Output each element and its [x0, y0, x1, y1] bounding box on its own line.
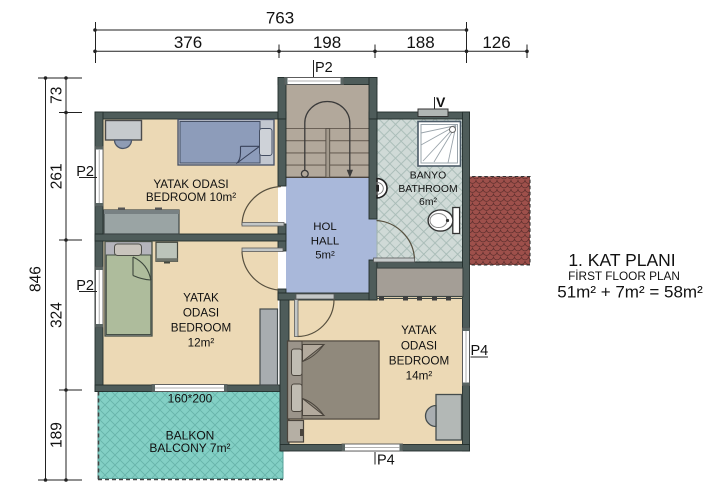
svg-text:14m²: 14m²	[406, 370, 433, 383]
svg-text:6m²: 6m²	[419, 197, 437, 208]
svg-text:188: 188	[406, 33, 434, 52]
svg-text:BATHROOM: BATHROOM	[398, 184, 457, 195]
svg-text:376: 376	[174, 33, 202, 52]
svg-text:ODASI: ODASI	[183, 307, 219, 320]
svg-text:12m²: 12m²	[188, 337, 215, 350]
svg-text:51m² + 7m² = 58m²: 51m² + 7m² = 58m²	[557, 283, 703, 302]
svg-text:1. KAT PLANI: 1. KAT PLANI	[568, 250, 675, 270]
svg-text:198: 198	[313, 33, 341, 52]
svg-text:HOL: HOL	[313, 221, 336, 233]
svg-text:73: 73	[49, 87, 66, 104]
svg-text:763: 763	[266, 9, 294, 28]
svg-text:FİRST FLOOR PLAN: FİRST FLOOR PLAN	[568, 269, 680, 283]
svg-text:YATAK: YATAK	[183, 292, 219, 305]
svg-text:BEDROOM: BEDROOM	[389, 355, 449, 368]
svg-text:160*200: 160*200	[168, 392, 213, 406]
svg-text:BEDROOM 10m²: BEDROOM 10m²	[146, 191, 236, 204]
svg-text:324: 324	[49, 302, 66, 328]
svg-text:BANYO: BANYO	[410, 170, 446, 181]
svg-text:126: 126	[482, 33, 510, 52]
svg-text:V: V	[436, 94, 446, 110]
svg-text:YATAK: YATAK	[401, 324, 437, 337]
svg-text:261: 261	[49, 163, 66, 189]
svg-text:BEDROOM: BEDROOM	[171, 322, 231, 335]
svg-text:HALL: HALL	[311, 236, 340, 248]
svg-text:P2: P2	[315, 60, 333, 76]
svg-text:189: 189	[49, 422, 66, 448]
svg-text:P4: P4	[377, 453, 395, 469]
svg-text:5m²: 5m²	[315, 250, 335, 262]
svg-text:YATAK ODASI: YATAK ODASI	[153, 178, 228, 191]
svg-text:846: 846	[28, 266, 45, 292]
svg-text:ODASI: ODASI	[401, 340, 437, 353]
svg-text:BALCONY 7m²: BALCONY 7m²	[149, 441, 230, 455]
